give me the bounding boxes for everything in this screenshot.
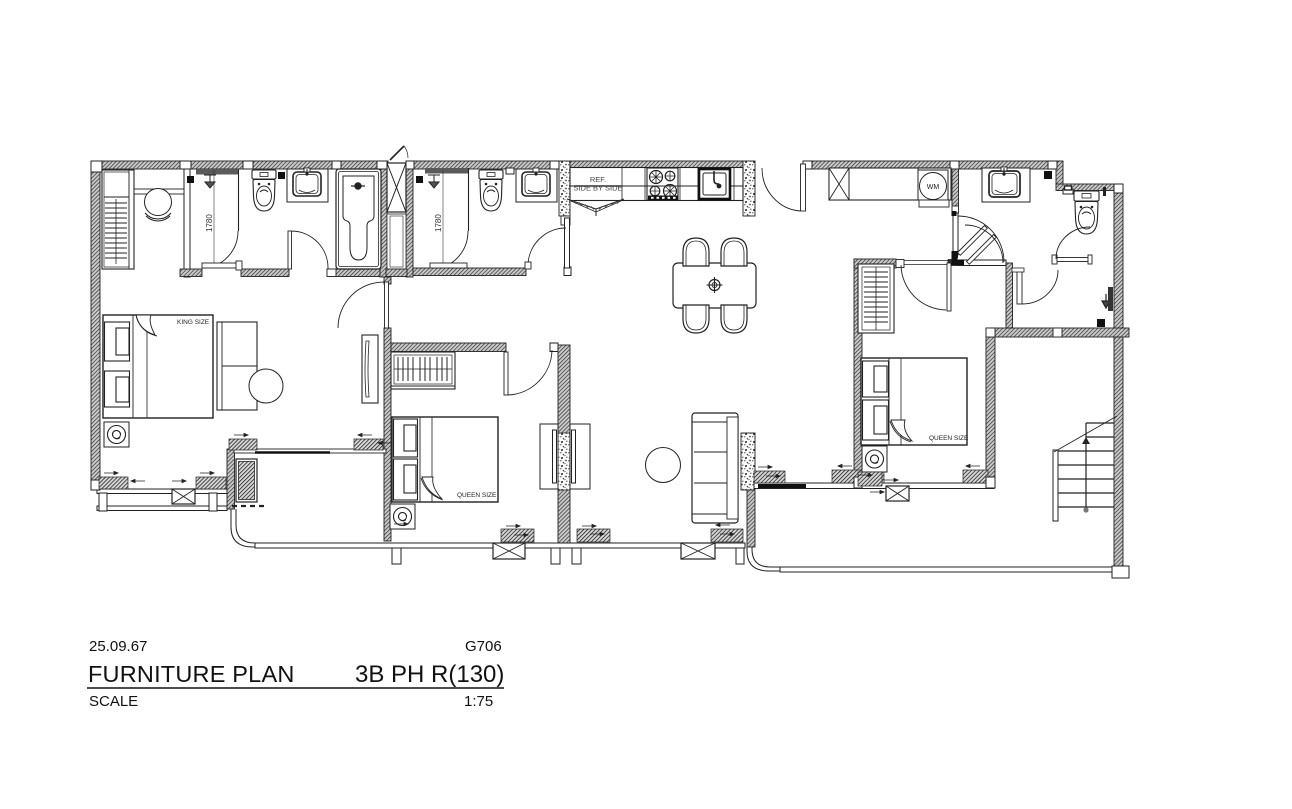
svg-text:QUEEN SIZE: QUEEN SIZE [929,435,969,442]
svg-text:FURNITURE PLAN: FURNITURE PLAN [88,661,295,687]
svg-text:WM: WM [927,184,940,191]
svg-text:1780: 1780 [434,214,443,232]
svg-text:G706: G706 [465,638,502,655]
svg-text:QUEEN SIZE: QUEEN SIZE [457,492,497,499]
svg-text:SIDE BY SIDE: SIDE BY SIDE [573,184,622,193]
svg-text:25.09.67: 25.09.67 [89,638,147,655]
svg-text:3B PH R(130): 3B PH R(130) [355,661,504,688]
svg-text:1780: 1780 [205,214,214,232]
svg-text:SCALE: SCALE [89,693,138,710]
svg-text:1:75: 1:75 [464,693,493,710]
svg-text:KING SIZE: KING SIZE [177,319,210,326]
